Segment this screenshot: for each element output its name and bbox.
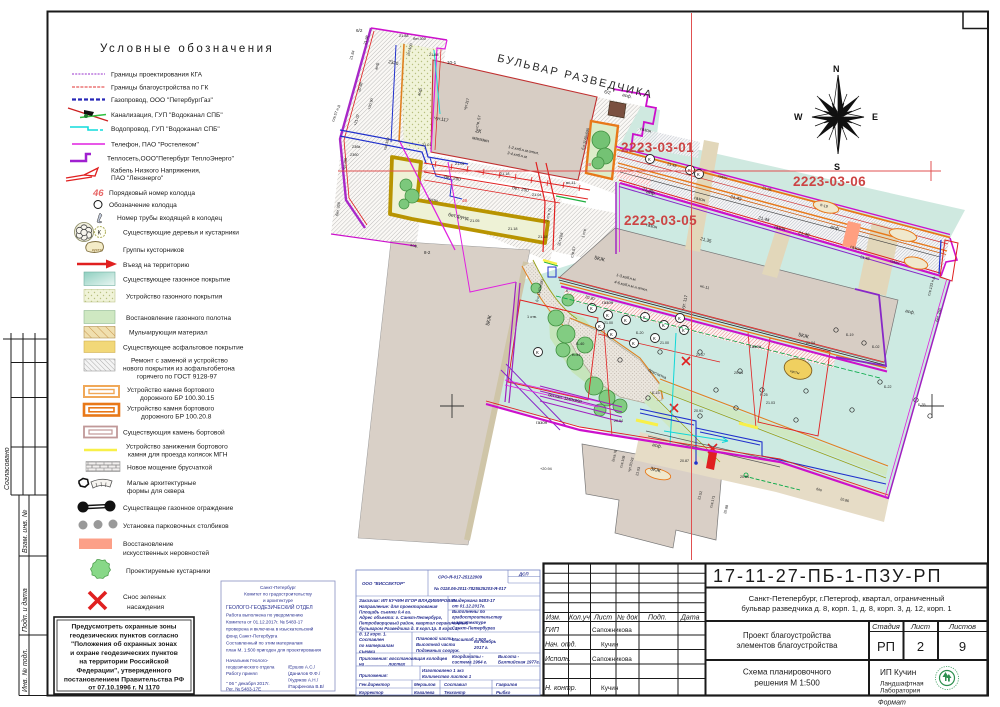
svg-text:+20.94: +20.94 <box>540 467 552 471</box>
svg-text:решения М 1:500: решения М 1:500 <box>754 679 820 688</box>
svg-text:Работу принял: Работу принял <box>226 671 258 676</box>
svg-text:/Парфенова В.В/: /Парфенова В.В/ <box>288 684 325 689</box>
svg-text:по материалам: по материалам <box>359 643 395 648</box>
svg-text:и архитектуре: и архитектуре <box>452 620 486 625</box>
svg-text:W: W <box>794 112 803 122</box>
svg-text:2017 г.: 2017 г. <box>473 645 489 650</box>
svg-text:9: 9 <box>959 639 966 654</box>
svg-text:К: К <box>610 332 613 337</box>
svg-text:газон: газон <box>750 344 762 349</box>
svg-text:Техконтр: Техконтр <box>444 690 466 695</box>
svg-text:на _________ листах: на _________ листах <box>359 662 406 667</box>
svg-text:(Данилов Ф.Ф./: (Данилов Ф.Ф./ <box>288 671 321 676</box>
svg-text:20.94: 20.94 <box>734 371 743 375</box>
svg-text:Новое мощение брусчаткой: Новое мощение брусчаткой <box>127 464 212 472</box>
svg-text:план М. 1:500 пригоден для про: план М. 1:500 пригоден для проектировани… <box>226 648 322 653</box>
svg-text:формы для сквера: формы для сквера <box>127 488 185 495</box>
svg-text:постановлением Правительства Р: постановлением Правительства РФ <box>64 676 185 683</box>
svg-text:К: К <box>648 157 651 162</box>
svg-text:21.04: 21.04 <box>806 341 815 345</box>
svg-text:дорожного БР 100.20.8: дорожного БР 100.20.8 <box>141 414 212 421</box>
svg-text:К: К <box>606 313 609 318</box>
svg-text:ДСП: ДСП <box>518 572 529 577</box>
svg-text:Существующия камень бортовой: Существующия камень бортовой <box>123 429 225 437</box>
svg-text:геодезических пунктов согласно: геодезических пунктов согласно <box>70 632 179 639</box>
svg-text:дорожного БР 100.30.15: дорожного БР 100.30.15 <box>140 395 214 402</box>
svg-text:21.00: 21.00 <box>660 341 669 345</box>
svg-text:Восстановление: Восстановление <box>123 541 174 548</box>
svg-text:Существующее газонное покрытие: Существующее газонное покрытие <box>123 277 231 284</box>
svg-text:бульвар разведчика д. 8, корп.: бульвар разведчика д. 8, корп. 1, д. 8, … <box>741 604 951 613</box>
svg-text:съемки: съемки <box>359 649 375 654</box>
svg-text:1 отв.: 1 отв. <box>527 315 537 319</box>
svg-text:6/2: 6/2 <box>604 89 612 95</box>
svg-text:газон: газон <box>602 300 614 305</box>
svg-text:асф.: асф. <box>622 92 633 99</box>
svg-text:Б-15: Б-15 <box>652 391 660 395</box>
svg-text:Границы благоустройства по ГК: Границы благоустройства по ГК <box>111 84 208 92</box>
svg-text:S: S <box>834 162 840 172</box>
svg-text:Ландшафтная: Ландшафтная <box>880 681 924 688</box>
svg-text:/Худяков А.Н./: /Худяков А.Н./ <box>288 678 319 683</box>
svg-text:Адрес объекта: г. Санкт-Петер: Адрес объекта: г. Санкт-Петербург, <box>358 615 442 620</box>
svg-text:20.88: 20.88 <box>723 505 729 515</box>
svg-text:2223-03-05: 2223-03-05 <box>624 213 697 228</box>
svg-text:46: 46 <box>461 198 468 203</box>
svg-text:Составлен: Составлен <box>359 637 384 642</box>
svg-text:К: К <box>536 350 539 355</box>
svg-text:21.18: 21.18 <box>500 172 510 176</box>
svg-text:Номер трубы входящей в колодец: Номер трубы входящей в колодец <box>117 214 222 222</box>
svg-text:Газопровод, ООО "ПетербургГаз": Газопровод, ООО "ПетербургГаз" <box>111 96 214 104</box>
svg-text:21.18: 21.18 <box>508 227 518 231</box>
svg-text:8-2: 8-2 <box>424 250 431 255</box>
svg-text:Начальник Геолого-: Начальник Геолого- <box>226 658 269 663</box>
svg-text:Канализация, ГУП "Водоканал СП: Канализация, ГУП "Водоканал СПБ" <box>111 112 223 119</box>
svg-text:20.87: 20.87 <box>680 459 689 463</box>
svg-text:E: E <box>872 112 878 122</box>
svg-text:Ремонт с заменой и устройство: Ремонт с заменой и устройство <box>131 357 228 365</box>
svg-text:РП: РП <box>877 639 895 654</box>
svg-text:на ноябрь: на ноябрь <box>474 639 497 644</box>
svg-text:Схема планировочного: Схема планировочного <box>743 668 832 677</box>
svg-text:Снос зеленых: Снос зеленых <box>123 594 166 601</box>
svg-text:Гаврилов: Гаврилов <box>496 682 517 687</box>
svg-text:21.03: 21.03 <box>766 401 775 405</box>
svg-text:Изготовлено 1 экз: Изготовлено 1 экз <box>422 668 464 673</box>
svg-text:Лист: Лист <box>593 615 612 622</box>
svg-text:Кол.уч: Кол.уч <box>569 615 590 622</box>
svg-text:" 06 " декабря 2017г.: " 06 " декабря 2017г. <box>226 681 270 686</box>
svg-text:ООО "ВИССЕКТОР": ООО "ВИССЕКТОР" <box>362 581 406 586</box>
svg-text:Устройство занижения бортового: Устройство занижения бортового <box>126 443 228 451</box>
svg-text:Б-40: Б-40 <box>576 341 585 346</box>
svg-text:Проектируемые кустарники: Проектируемые кустарники <box>126 568 211 575</box>
svg-text:Группы кусторников: Группы кусторников <box>123 247 185 254</box>
svg-text:ГЕОЛОГО-ГЕОДЕЗИЧЕСКИЙ ОТДЕЛ: ГЕОЛОГО-ГЕОДЕЗИЧЕСКИЙ ОТДЕЛ <box>226 603 313 611</box>
svg-text:Федерации", утвержденного: Федерации", утвержденного <box>77 668 172 675</box>
svg-text:Комитет по градостроительству: Комитет по градостроительству <box>244 592 312 597</box>
svg-text:Порядковый номер колодца: Порядковый номер колодца <box>109 189 195 197</box>
svg-text:К: К <box>98 231 102 237</box>
svg-text:/Ершов А.С./: /Ершов А.С./ <box>288 665 316 670</box>
svg-text:Мерзьлов: Мерзьлов <box>414 682 436 687</box>
svg-text:Устройство камня бортового: Устройство камня бортового <box>127 405 215 413</box>
svg-text:6/2: 6/2 <box>356 28 363 33</box>
svg-text:Востановление газонного полотн: Востановление газонного полотна <box>126 315 231 322</box>
svg-text:Кучин: Кучин <box>601 642 619 649</box>
svg-text:горячего по ГОСТ 9128-97: горячего по ГОСТ 9128-97 <box>137 374 217 381</box>
svg-text:Устройство камня бортового: Устройство камня бортового <box>127 386 215 394</box>
svg-text:К: К <box>678 316 681 321</box>
svg-text:Ковалева: Ковалева <box>414 690 435 695</box>
svg-text:Площадь съемки 0.4 га.: Площадь съемки 0.4 га. <box>359 610 411 615</box>
svg-text:Предусмотреть охранные зоны: Предусмотреть охранные зоны <box>71 624 176 631</box>
svg-text:Въезд на территорию: Въезд на территорию <box>123 262 189 269</box>
svg-text:2: 2 <box>917 639 924 654</box>
svg-text:Выдержана 5483-17: Выдержана 5483-17 <box>452 598 495 603</box>
svg-text:Б-19: Б-19 <box>846 333 854 337</box>
svg-text:2223-03-01: 2223-03-01 <box>621 140 694 155</box>
svg-text:Исполн.: Исполн. <box>545 656 571 663</box>
svg-text:Формат: Формат <box>878 700 906 707</box>
svg-text:Санкт-Петербург: Санкт-Петербург <box>260 585 296 590</box>
svg-text:К: К <box>682 328 685 333</box>
svg-text:Санкт-Петепербург, г.Петергоф,: Санкт-Петепербург, г.Петергоф, квартал, … <box>749 594 945 603</box>
svg-text:Существующее асфальтовое покры: Существующее асфальтовое покрытие <box>123 345 244 352</box>
svg-text:23ба: 23ба <box>352 145 361 149</box>
svg-text:Малые архитектурные: Малые архитектурные <box>127 480 196 487</box>
svg-text:Границы проектирования КГА: Границы проектирования КГА <box>111 72 203 79</box>
svg-text:23б0: 23б0 <box>350 153 359 157</box>
svg-text:Телефон, ПАО "Ростелеком": Телефон, ПАО "Ростелеком" <box>111 142 199 149</box>
svg-text:система 1964 г.: система 1964 г. <box>452 660 487 665</box>
svg-text:21.18: 21.18 <box>538 235 548 239</box>
svg-text:Рег. № 5483-17Е: Рег. № 5483-17Е <box>226 687 261 692</box>
svg-text:Изм.: Изм. <box>546 615 561 622</box>
svg-text:Проект благоустройства: Проект благоустройства <box>743 631 832 640</box>
svg-text:Количество листов 1: Количество листов 1 <box>422 674 472 679</box>
svg-text:21.04: 21.04 <box>532 193 542 197</box>
svg-text:Приложения:: Приложения: <box>359 673 388 678</box>
svg-text:Работа выполнена по уведомлени: Работа выполнена по уведомлению <box>226 613 303 618</box>
svg-text:Инв. № подл.: Инв. № подл. <box>21 649 29 692</box>
svg-text:Сапожникова: Сапожникова <box>592 627 632 634</box>
svg-text:камня для проезда колясок МГН: камня для проезда колясок МГН <box>128 452 228 459</box>
svg-text:К: К <box>653 336 656 341</box>
svg-text:бет.300: бет.300 <box>413 37 426 41</box>
svg-text:Высота -: Высота - <box>498 654 520 659</box>
svg-text:Существующие деревья и кустарн: Существующие деревья и кустарники <box>123 230 239 237</box>
svg-text:"Положения об охранных зонах: "Положения об охранных зонах <box>71 640 177 648</box>
svg-text:бульваром Разведчика д. 8 корп: бульваром Разведчика д. 8 корп.1р. 8 кор… <box>359 626 459 631</box>
svg-text:Установка парковочных столбико: Установка парковочных столбиков <box>123 522 229 530</box>
svg-text:и охране геодезических пунктов: и охране геодезических пунктов <box>70 650 178 657</box>
svg-text:от 01.12.2017г.: от 01.12.2017г. <box>452 604 485 609</box>
svg-text:геодезического отдела: геодезического отдела <box>226 665 275 670</box>
svg-text:Теплосеть,ООО"Петербург ТеплоЭ: Теплосеть,ООО"Петербург ТеплоЭнерго" <box>107 155 235 163</box>
svg-text:ИП Кучин: ИП Кучин <box>880 668 916 677</box>
svg-text:от 07.10.1996 г. N 1170: от 07.10.1996 г. N 1170 <box>88 685 160 692</box>
svg-text:Водопровод, ГУП "Водоканал СПБ: Водопровод, ГУП "Водоканал СПБ" <box>111 126 220 133</box>
svg-text:Б-35: Б-35 <box>918 403 926 407</box>
svg-text:насаждения: насаждения <box>127 604 165 611</box>
svg-text:элементов благоустройства: элементов благоустройства <box>737 641 839 650</box>
svg-text:21.84: 21.84 <box>349 50 355 60</box>
svg-text:искусственных неровностей: искусственных неровностей <box>123 549 209 557</box>
svg-text:2223-03-06: 2223-03-06 <box>793 174 866 189</box>
svg-text:Стадия: Стадия <box>872 622 900 631</box>
svg-text:Лист: Лист <box>910 622 930 631</box>
svg-text:К: К <box>643 315 646 320</box>
svg-text:21.05: 21.05 <box>470 219 480 223</box>
svg-text:Высотной части: Высотной части <box>416 642 456 647</box>
svg-text:Н. контр.: Н. контр. <box>545 685 577 692</box>
svg-text:д. 12 корп. 1.: д. 12 корп. 1. <box>359 632 387 637</box>
svg-text:20.91: 20.91 <box>694 409 703 413</box>
svg-text:Кучин: Кучин <box>601 685 619 692</box>
svg-text:Сапожникова: Сапожникова <box>592 656 632 663</box>
svg-text:Существащее газонное ограждени: Существащее газонное ограждение <box>123 505 234 512</box>
svg-text:10-1: 10-1 <box>447 60 457 65</box>
svg-text:Б-02: Б-02 <box>872 345 880 349</box>
svg-text:СРО-Я-017-25122009: СРО-Я-017-25122009 <box>438 575 483 580</box>
svg-text:Балтийская 1977г.: Балтийская 1977г. <box>498 660 540 665</box>
svg-text:Составил: Составил <box>444 682 467 687</box>
svg-text:Б-20: Б-20 <box>636 331 644 335</box>
svg-text:Подземных сооруж.: Подземных сооруж. <box>416 648 460 653</box>
svg-text:Приложения: восстановящая кол: Приложения: восстановящая колодцев <box>359 656 448 661</box>
svg-text:№ док: № док <box>617 614 638 622</box>
svg-text:Координаты -: Координаты - <box>452 654 484 659</box>
svg-text:ств.57 н.д.: ств.57 н.д. <box>331 104 341 123</box>
svg-text:кусты: кусты <box>92 247 103 252</box>
svg-text:46: 46 <box>585 162 592 167</box>
svg-text:21.88: 21.88 <box>429 53 439 57</box>
svg-text:К: К <box>598 324 601 329</box>
svg-text:Подп. и дата: Подп. и дата <box>21 588 29 632</box>
svg-text:Ген.директор: Ген.директор <box>359 682 390 687</box>
svg-text:ПАО "Лензнерго": ПАО "Лензнерго" <box>111 175 164 182</box>
svg-text:Р-25: Р-25 <box>760 393 768 397</box>
svg-text:на территории Российской: на территории Российской <box>79 658 168 666</box>
svg-text:Условные обозначения: Условные обозначения <box>100 43 274 55</box>
svg-text:21.01: 21.01 <box>422 143 432 147</box>
svg-text:Лаборатория: Лаборатория <box>880 687 921 695</box>
svg-text:Направление: для проектирован: Направление: для проектирования <box>359 604 438 609</box>
svg-text:20.94: 20.94 <box>614 419 623 423</box>
svg-text:и архитектуре: и архитектуре <box>263 598 293 603</box>
svg-text:21.88: 21.88 <box>399 34 409 38</box>
svg-text:Обозначение колодца: Обозначение колодца <box>109 201 177 209</box>
svg-text:проверена и включена в изыскат: проверена и включена в изыскательский <box>226 626 314 632</box>
svg-text:Согласовано: Согласовано <box>4 447 11 490</box>
svg-text:21.07: 21.07 <box>696 353 705 357</box>
svg-text:Составленный по этим материала: Составленный по этим материалам <box>226 640 303 646</box>
svg-text:Мульчирующия материал: Мульчирующия материал <box>129 330 208 337</box>
svg-text:№ 0118.06-2011-7825525203-Я-01: № 0118.06-2011-7825525203-Я-017 <box>434 586 507 591</box>
svg-text:К: К <box>697 172 700 177</box>
svg-text:46: 46 <box>92 188 104 199</box>
svg-text:Б-22: Б-22 <box>884 385 892 389</box>
svg-text:фонд Санкт-Петербурга: фонд Санкт-Петербурга <box>226 634 278 639</box>
svg-text:17-11-27-ПБ-1-ПЗУ-РП: 17-11-27-ПБ-1-ПЗУ-РП <box>713 566 942 586</box>
svg-text:Нач. отд.: Нач. отд. <box>545 641 577 649</box>
svg-text:К: К <box>632 341 635 346</box>
svg-text:газон: газон <box>536 420 548 425</box>
svg-text:Комитета от 01.12.2017г. № 548: Комитета от 01.12.2017г. № 5483-17 <box>226 620 303 625</box>
svg-text:Заказчик: ИП КУЧИН ЕГОР ВЛАДИ: Заказчик: ИП КУЧИН ЕГОР ВЛАДИМИРОВИЧ <box>359 598 457 603</box>
svg-text:Санкт-Петербурга: Санкт-Петербурга <box>452 626 496 631</box>
svg-text:градостроительству: градостроительству <box>452 615 503 620</box>
svg-text:Кабель Низкого Напряжения,: Кабель Низкого Напряжения, <box>111 167 201 175</box>
svg-text:нового покрытия из асфальтобет: нового покрытия из асфальтобетона <box>123 365 235 373</box>
svg-text:Выполнены по: Выполнены по <box>452 609 485 614</box>
svg-text:Устройство газонного покрытия: Устройство газонного покрытия <box>126 293 223 301</box>
svg-text:20.84: 20.84 <box>740 475 749 479</box>
svg-text:N: N <box>833 64 840 74</box>
svg-text:Взам. инв. №: Взам. инв. № <box>22 509 29 553</box>
svg-text:Подп.: Подп. <box>648 614 667 622</box>
svg-text:Корректор: Корректор <box>359 690 384 695</box>
svg-text:К: К <box>590 306 593 311</box>
svg-text:Б-34: Б-34 <box>572 352 581 357</box>
svg-text:Рыбко: Рыбко <box>496 690 511 695</box>
svg-text:21.04: 21.04 <box>455 162 465 166</box>
svg-text:ГИП: ГИП <box>545 627 560 634</box>
svg-text:6: 6 <box>566 289 568 293</box>
svg-text:21.00: 21.00 <box>604 321 613 325</box>
svg-text:К: К <box>624 318 627 323</box>
svg-text:вс-11: вс-11 <box>566 180 576 185</box>
svg-text:Дата: Дата <box>680 615 700 622</box>
svg-text:Плановой части: Плановой части <box>416 636 453 641</box>
svg-text:Листов: Листов <box>948 622 976 631</box>
